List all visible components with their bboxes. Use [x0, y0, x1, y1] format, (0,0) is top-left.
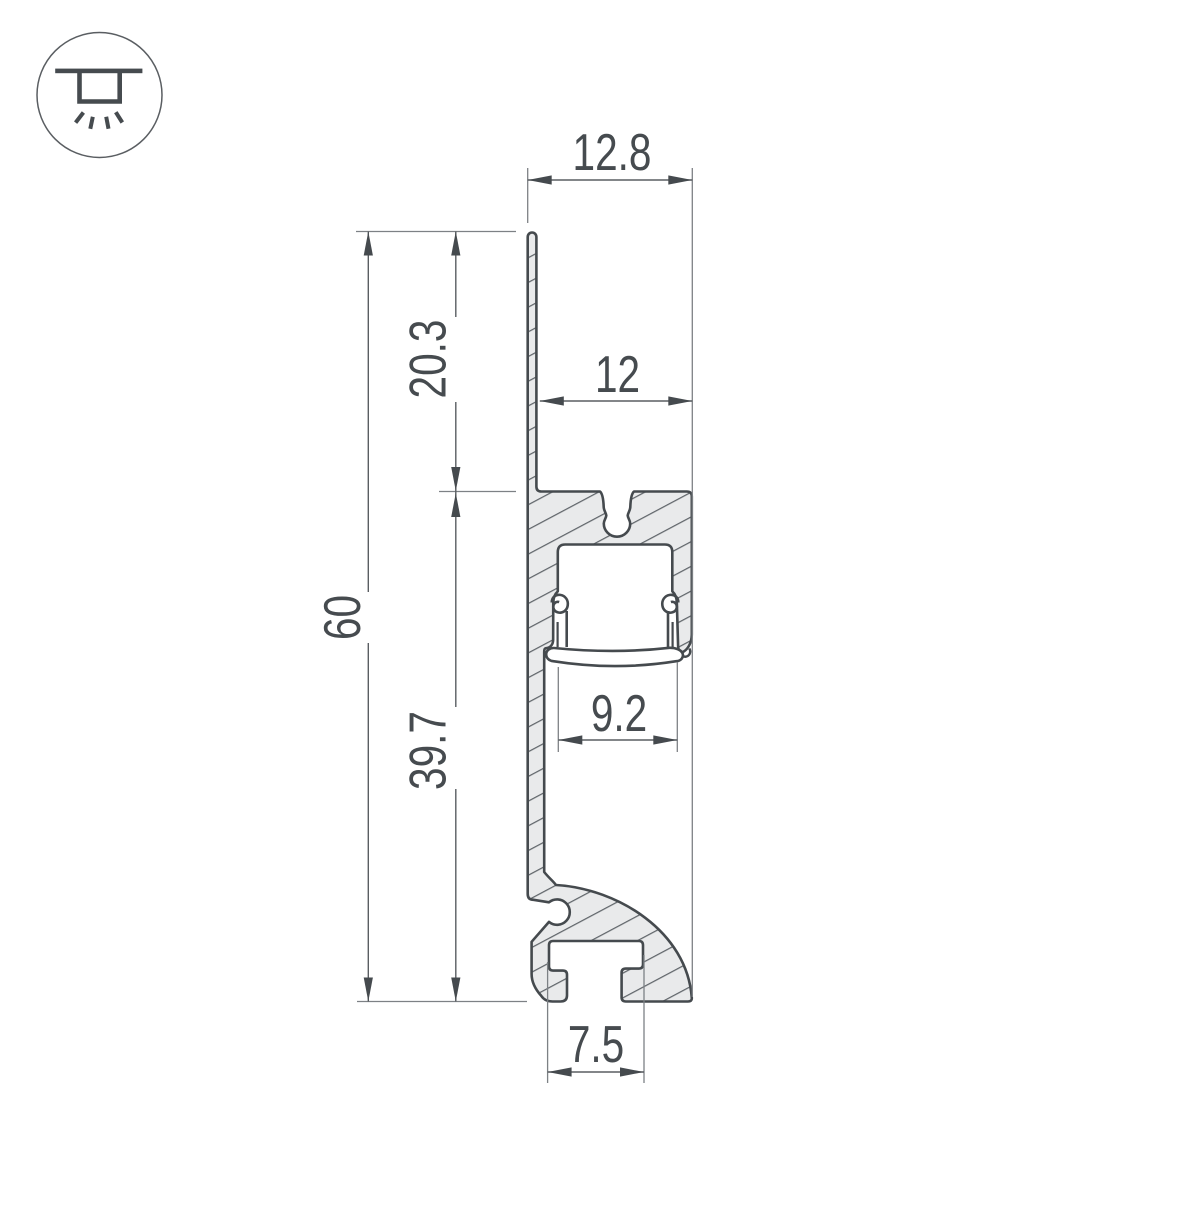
svg-text:9.2: 9.2 [591, 684, 647, 742]
svg-text:7.5: 7.5 [568, 1015, 624, 1073]
svg-text:12: 12 [595, 345, 640, 403]
svg-text:12.8: 12.8 [573, 123, 652, 181]
svg-text:20.3: 20.3 [399, 320, 457, 399]
svg-text:39.7: 39.7 [399, 711, 457, 790]
svg-text:60: 60 [313, 595, 371, 640]
